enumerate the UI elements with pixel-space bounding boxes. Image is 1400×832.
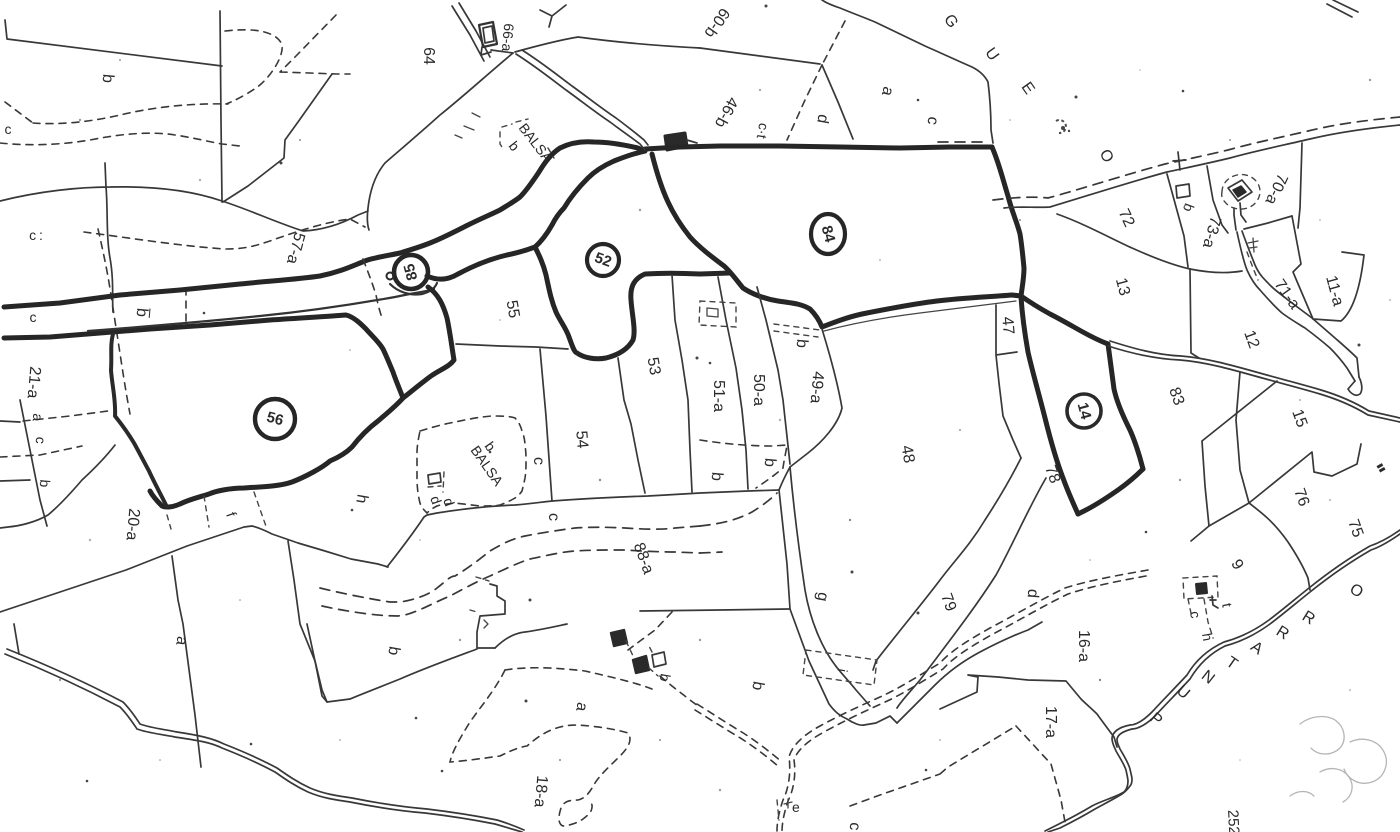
svg-text:55: 55 <box>503 299 523 320</box>
svg-text:49-a: 49-a <box>807 371 827 404</box>
svg-text:16-a: 16-a <box>1075 630 1092 662</box>
svg-text:b: b <box>37 479 54 488</box>
svg-text:17-a: 17-a <box>1042 706 1059 738</box>
svg-text:d: d <box>1024 588 1042 598</box>
svg-text:53: 53 <box>644 356 664 377</box>
svg-text:252: 252 <box>1224 809 1242 832</box>
svg-text:c :: c : <box>29 227 43 243</box>
svg-text:b: b <box>761 457 779 467</box>
svg-text:c: c <box>33 436 50 444</box>
svg-text:c: c <box>545 513 562 521</box>
svg-text:e: e <box>792 799 800 815</box>
svg-text:18-a: 18-a <box>531 775 551 808</box>
svg-text:54: 54 <box>572 430 590 449</box>
svg-text:21-a: 21-a <box>24 366 44 399</box>
svg-text:47: 47 <box>998 316 1016 335</box>
svg-text:b: b <box>708 471 726 481</box>
svg-text:a: a <box>30 413 47 422</box>
svg-text:64: 64 <box>420 47 437 65</box>
svg-text:c: c <box>30 309 37 325</box>
svg-text:c·t: c·t <box>754 122 772 140</box>
svg-text:51-a: 51-a <box>710 380 727 412</box>
svg-text:b: b <box>99 73 117 83</box>
svg-text:c: c <box>846 822 864 831</box>
svg-text:66-a: 66-a <box>499 23 517 53</box>
svg-text:c: c <box>530 457 547 465</box>
svg-text:48: 48 <box>898 444 918 465</box>
svg-text:20-a: 20-a <box>123 508 143 541</box>
svg-text:c: c <box>5 121 12 137</box>
svg-text:50-a: 50-a <box>750 374 767 406</box>
svg-text:b: b <box>793 338 811 348</box>
